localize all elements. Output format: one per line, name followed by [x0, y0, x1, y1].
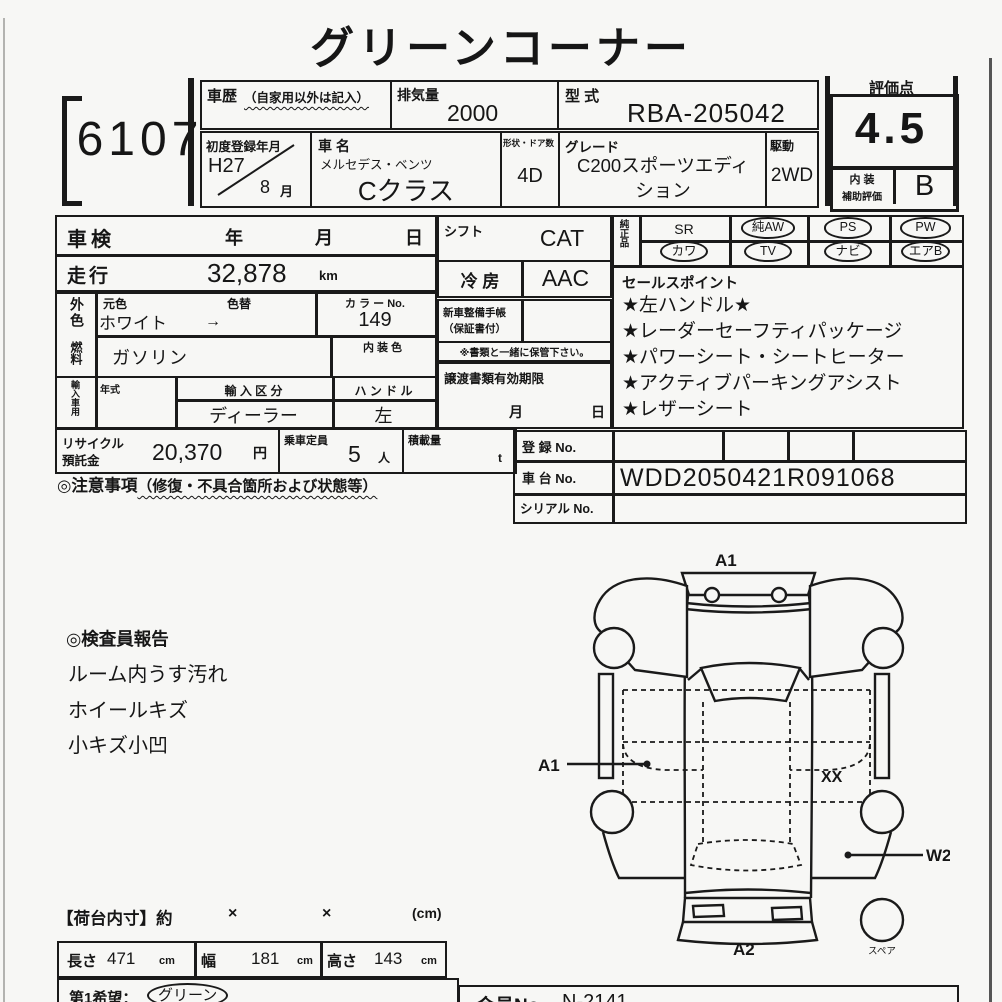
- model-code-cell: 型 式 RBA-205042: [557, 80, 819, 130]
- recycle-box: リサイクル 預託金 20,370 円: [55, 428, 280, 474]
- import-box: 輸入車用 年式 輸 入 区 分 ディーラー ハ ン ド ル 左: [55, 376, 437, 429]
- recycle-unit: 円: [253, 443, 267, 463]
- equip-pw-label: PW: [900, 217, 950, 239]
- ac-label: 冷 房: [439, 267, 521, 292]
- transfer-month: 月: [509, 402, 523, 422]
- service-book-box: 新車整備手帳 （保証書付）: [437, 299, 612, 343]
- registration-table: 登 録 No. 車 台 No. WDD2050421R091068 シリアル N…: [513, 430, 967, 524]
- lot-bracket-top: [62, 96, 82, 101]
- lot-bracket-bottom: [62, 201, 82, 206]
- sales-point-item: ★アクティブパーキングアシスト: [622, 368, 902, 395]
- interior-color-label: 内 装 色: [330, 339, 435, 355]
- shaken-divider: [57, 254, 435, 257]
- length-label: 長さ: [67, 950, 97, 971]
- transfer-box: 譲渡書類有効期限 月 日: [437, 362, 612, 429]
- equip-ps-label: PS: [824, 217, 873, 239]
- scan-edge-right: [989, 58, 992, 1002]
- cargo-times-1: ×: [228, 905, 237, 923]
- equip-pw: PW: [889, 216, 962, 240]
- mileage-value: 32,878: [207, 258, 287, 289]
- member-box: 会員No. N-2141: [458, 985, 959, 1002]
- grade-value: C200スポーツエディション: [572, 154, 754, 204]
- diagram-rear-right-label: W2: [926, 846, 950, 865]
- displacement-cell: 排気量 2000: [390, 80, 559, 130]
- car-model: Cクラス: [312, 171, 500, 208]
- length-unit: cm: [159, 955, 175, 967]
- equip-airb: エアB: [889, 240, 962, 263]
- cargo-times-2: ×: [322, 905, 331, 923]
- wish-label: 第1希望：: [69, 987, 137, 1002]
- recolor-label: 色替: [227, 295, 251, 312]
- diagram-right-panel-label: XX: [821, 769, 843, 786]
- front-bumper: [682, 573, 815, 595]
- rear-plate-right: [772, 907, 802, 920]
- first-reg-slash: [202, 133, 306, 202]
- sales-points-box: セールスポイント ★左ハンドル★ ★レーダーセーフティパッケージ ★パワーシート…: [612, 266, 964, 429]
- color-fuel-box: 外色 元色 色替 ホワイト → カ ラ ー No. 149 燃料 ガソリン 内 …: [55, 290, 437, 378]
- height-unit: cm: [421, 955, 437, 967]
- diagram-rear-label: A2: [733, 940, 755, 959]
- ext-color-label: 外色: [67, 297, 87, 329]
- page-title: グリーンコーナー: [251, 12, 751, 67]
- color-fuel-divider: [95, 335, 435, 338]
- a1-left-dot: [644, 761, 651, 768]
- fuel-label: 燃料: [68, 341, 85, 365]
- auction-sheet-page: グリーンコーナー 6107 車歴 （自家用以外は記入） 排気量 2000 型 式…: [0, 0, 1002, 1002]
- width-value: 181: [251, 949, 279, 969]
- import-class-value: ディーラー: [175, 402, 332, 428]
- equip-navi: ナビ: [807, 240, 889, 263]
- capacity-unit: 人: [378, 449, 390, 466]
- cargo-dims-box: 長さ 471 cm 幅 181 cm 高さ 143 cm: [57, 941, 447, 978]
- diagram-spare-label: スペア: [868, 946, 896, 957]
- load-box: 積載量 t: [402, 428, 517, 474]
- reg-label-divider: [612, 432, 615, 522]
- recycle-label-2: 預託金: [62, 450, 100, 469]
- doors-cell: 形状・ドア数 4D: [500, 131, 560, 208]
- cargo-div1: [194, 943, 197, 976]
- wheel-rear-right: [861, 791, 903, 833]
- grade-cell: グレード C200スポーツエディション: [558, 131, 767, 208]
- wheel-rear-left: [591, 791, 633, 833]
- import-class-label: 輸 入 区 分: [175, 382, 332, 399]
- shift-value: CAT: [517, 225, 607, 252]
- trunk-edge: [685, 890, 811, 894]
- shaken-year: 年: [225, 224, 243, 250]
- handle-label: ハ ン ド ル: [332, 382, 435, 399]
- import-div1: [95, 378, 98, 427]
- equip-airb-label: エアB: [901, 241, 950, 263]
- ac-value: AAC: [521, 265, 610, 292]
- wheel-front-left: [594, 628, 634, 668]
- wheel-front-right: [863, 628, 903, 668]
- caution-line: ◎注意事項（修復・不具合箇所および状態等）: [57, 472, 377, 496]
- chassis-label: 車 台 No.: [522, 468, 576, 487]
- transfer-day: 日: [591, 402, 605, 422]
- color-value: ホワイト: [99, 309, 167, 334]
- lot-bracket-vline: [62, 96, 67, 206]
- chassis-value: WDD2050421R091068: [620, 464, 896, 493]
- equipment-label: 純正品: [618, 219, 628, 248]
- inspector-report-item: 小キズ小凹: [68, 729, 168, 758]
- floor-curve-left: [623, 744, 703, 770]
- windshield: [701, 663, 800, 701]
- capacity-value: 5: [348, 441, 361, 468]
- w2-dot: [845, 852, 852, 859]
- right-sill-bar: [875, 674, 889, 778]
- capacity-label: 乗車定員: [284, 432, 328, 448]
- shaken-month: 月: [315, 224, 333, 250]
- color-label-divider: [95, 292, 98, 376]
- mileage-unit: km: [319, 268, 338, 283]
- a-pillar-right: [800, 669, 809, 680]
- equip-kawa-label: カワ: [660, 241, 707, 263]
- reg-no-label: 登 録 No.: [522, 437, 576, 456]
- shaken-mileage-box: 車検 年 月 日 走行 32,878 km: [55, 215, 437, 294]
- left-rear-quarter: [603, 832, 685, 878]
- inspector-report-title: ◎検査員報告: [66, 626, 169, 651]
- left-sill-bar: [599, 674, 613, 778]
- capacity-box: 乗車定員 5 人: [278, 428, 404, 474]
- car-damage-diagram: A1 A1 XX W2 A2 スペア: [535, 548, 950, 962]
- equip-kawa: カワ: [639, 240, 729, 263]
- equip-tv-label: TV: [744, 241, 792, 263]
- keep-note-box: ※書類と一緒に保管下さい。: [437, 341, 612, 362]
- rating-interior-label-1: 内 装: [833, 171, 891, 187]
- inspector-report-item: ルーム内うす汚れ: [68, 658, 227, 687]
- length-value: 471: [107, 949, 135, 969]
- cargo-title: 【荷台内寸】約: [57, 905, 173, 929]
- equip-sr-label: SR: [674, 221, 693, 237]
- reg-no-div2: [787, 432, 790, 460]
- equip-navi-label: ナビ: [824, 241, 871, 263]
- car-name-cell: 車 名 メルセデス・ベンツ Cクラス: [310, 131, 502, 208]
- cargo-unit-note: (cm): [412, 905, 442, 921]
- reg-row2-divider: [515, 493, 965, 496]
- reg-row1-divider: [515, 460, 965, 463]
- equip-aw-label: 純AW: [741, 217, 795, 239]
- drive-cell: 駆動 2WD: [765, 131, 819, 208]
- doors-value: 4D: [502, 165, 558, 188]
- cargo-div2: [320, 943, 323, 976]
- history-label: 車歴: [207, 85, 237, 106]
- washer-nozzle-left: [705, 588, 719, 602]
- lot-number: 6107: [75, 112, 205, 167]
- reg-no-div3: [852, 432, 855, 460]
- shift-label: シフト: [444, 221, 483, 240]
- height-label: 高さ: [327, 950, 357, 971]
- color-no-value: 149: [315, 309, 435, 332]
- shaken-day: 日: [405, 224, 423, 250]
- equip-aw: 純AW: [729, 216, 807, 240]
- washer-nozzle-right: [772, 588, 786, 602]
- spare-tire: [861, 899, 903, 941]
- car-name-label: 車 名: [318, 136, 350, 156]
- serial-label: シリアル No.: [520, 498, 593, 517]
- wish-box: 第1希望： グリーン: [57, 978, 459, 1002]
- diagram-left-door-label: A1: [538, 756, 560, 775]
- handle-value: 左: [332, 402, 435, 428]
- rear-window: [691, 840, 801, 871]
- drive-label: 駆動: [770, 137, 794, 154]
- recycle-value: 20,370: [152, 439, 222, 466]
- ac-box: 冷 房 AAC: [437, 260, 612, 298]
- equip-sr: SR: [639, 217, 729, 240]
- wish-value: グリーン: [147, 983, 228, 1002]
- load-label: 積載量: [408, 432, 441, 448]
- displacement-label: 排気量: [397, 85, 439, 105]
- drive-value: 2WD: [767, 165, 817, 187]
- model-code-label: 型 式: [565, 85, 599, 106]
- rating-interior-label-2: 補助評価: [833, 188, 891, 203]
- doors-label: 形状・ドア数: [503, 137, 554, 149]
- service-book-label-2: （保証書付）: [443, 321, 506, 336]
- model-year-label: 年式: [100, 381, 120, 396]
- fuel-value: ガソリン: [112, 344, 188, 370]
- import-label: 輸入車用: [70, 380, 79, 416]
- grade-label: グレード: [565, 136, 619, 156]
- reg-no-div1: [722, 432, 725, 460]
- shaken-label: 車検: [67, 223, 115, 252]
- sales-point-item: ★パワーシート・シートヒーター: [622, 342, 905, 369]
- front-bumper-strip: [686, 603, 811, 607]
- sales-point-item: ★左ハンドル★: [622, 290, 751, 317]
- history-cell: 車歴 （自家用以外は記入）: [200, 80, 392, 130]
- service-book-label-1: 新車整備手帳: [443, 305, 506, 320]
- mileage-label: 走行: [67, 261, 111, 288]
- equip-tv: TV: [729, 240, 807, 263]
- displacement-value: 2000: [447, 100, 498, 127]
- width-unit: cm: [297, 955, 313, 967]
- load-unit: t: [498, 451, 502, 465]
- history-note: （自家用以外は記入）: [244, 87, 369, 106]
- member-label: 会員No.: [476, 991, 545, 1002]
- height-value: 143: [374, 949, 402, 969]
- equip-ps: PS: [807, 216, 889, 240]
- sales-point-item: ★レーダーセーフティパッケージ: [622, 316, 902, 343]
- service-divider: [521, 301, 524, 341]
- rating-score: 4.5: [830, 94, 953, 164]
- first-reg-cell: 初度登録年月 H27 8 月: [200, 131, 312, 208]
- equipment-box: 純正品 SR 純AW PS PW カワ TV ナビ エアB: [612, 215, 964, 267]
- diagram-front-label: A1: [715, 551, 737, 570]
- color-arrow: →: [205, 313, 221, 331]
- sales-point-item: ★レザーシート: [622, 394, 753, 421]
- keep-note: ※書類と一緒に保管下さい。: [439, 344, 610, 359]
- width-label: 幅: [201, 950, 216, 971]
- floor-curve-right: [790, 744, 870, 770]
- shift-box: シフト CAT: [437, 215, 612, 262]
- rear-plate-left: [693, 905, 724, 917]
- rating-interior-grade: B: [896, 166, 953, 206]
- transfer-label: 譲渡書類有効期限: [444, 368, 544, 387]
- caution-note: （修復・不具合箇所および状態等）: [137, 478, 377, 495]
- header-rule: [188, 78, 194, 206]
- hood-front-edge: [685, 609, 812, 613]
- model-code-value: RBA-205042: [627, 98, 786, 129]
- inspector-report-item: ホイールキズ: [68, 694, 188, 723]
- caution-label: ◎注意事項: [57, 477, 137, 495]
- member-value: N-2141: [562, 991, 628, 1002]
- a-pillar-left: [688, 669, 701, 680]
- scan-edge-left: [3, 18, 5, 1002]
